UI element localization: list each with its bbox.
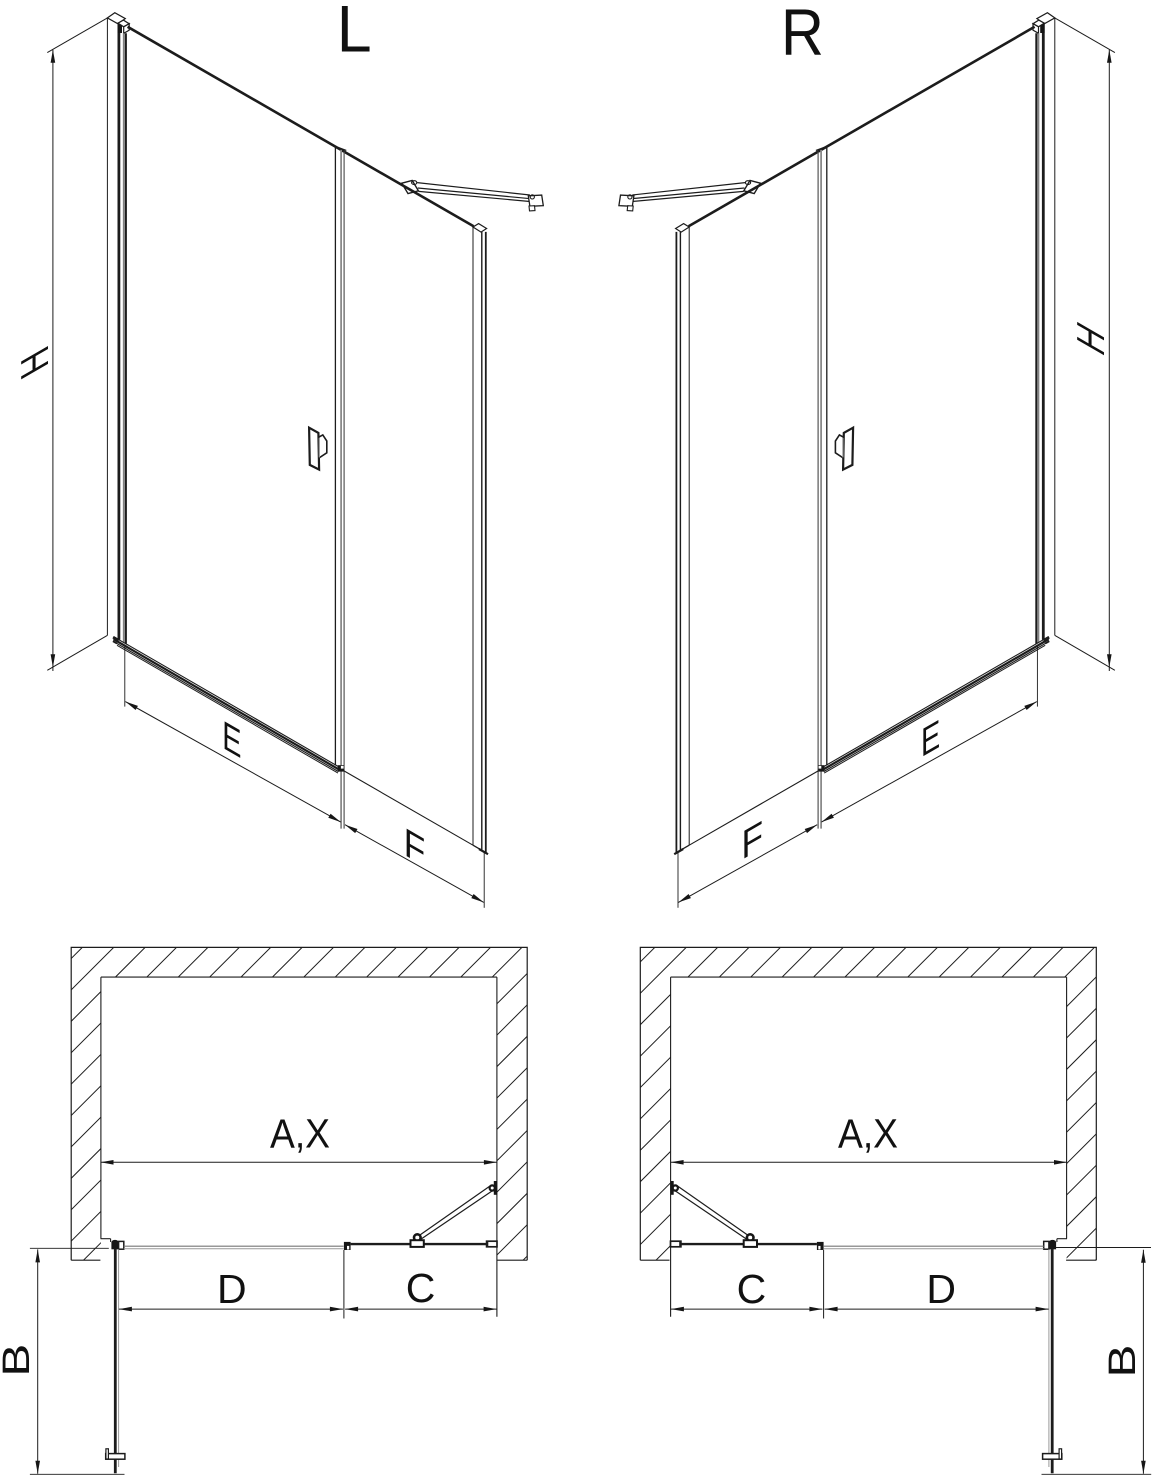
svg-text:A,X: A,X — [270, 1112, 330, 1157]
svg-text:R: R — [781, 0, 824, 70]
svg-text:D: D — [926, 1266, 956, 1312]
svg-text:L: L — [337, 0, 372, 66]
svg-text:C: C — [406, 1265, 436, 1311]
svg-text:C: C — [737, 1266, 767, 1312]
svg-text:A,X: A,X — [838, 1112, 898, 1157]
svg-text:B: B — [0, 1344, 37, 1377]
svg-text:D: D — [217, 1266, 247, 1312]
svg-text:B: B — [1102, 1345, 1144, 1378]
